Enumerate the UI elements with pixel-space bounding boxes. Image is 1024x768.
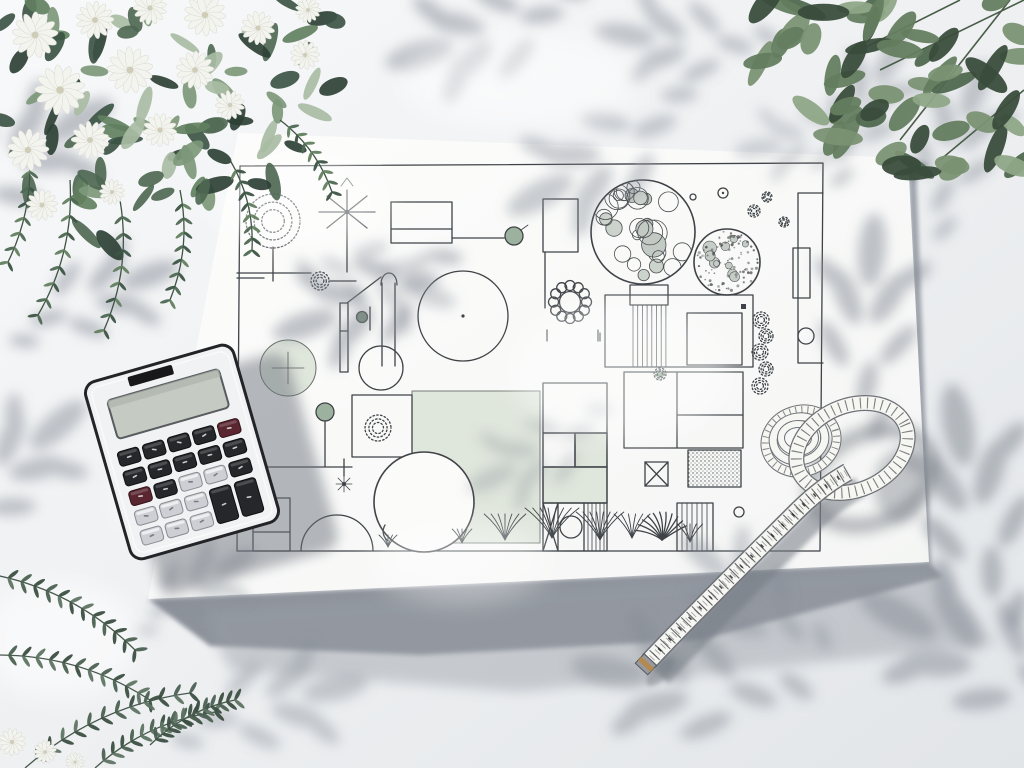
gravel-dot <box>723 231 725 233</box>
gravel-dot <box>707 255 709 257</box>
gravel-dot <box>708 272 710 274</box>
gravel-dot <box>739 271 741 273</box>
gravel-dot <box>756 258 758 260</box>
gravel-dot <box>728 240 730 242</box>
gravel-dot <box>703 249 705 251</box>
gravel-dot <box>727 287 729 289</box>
gravel-dot <box>751 268 754 271</box>
green-planting-bed <box>543 467 607 503</box>
gravel-dot <box>709 279 712 282</box>
gravel-dot <box>743 276 745 278</box>
gravel-dot <box>711 248 714 251</box>
gravel-dot <box>747 251 750 254</box>
gravel-dot <box>717 246 719 248</box>
gravel-dot <box>749 271 752 274</box>
gravel-dot <box>715 289 717 291</box>
gravel-dot <box>733 247 735 249</box>
gravel-blob <box>726 262 733 269</box>
gravel-dot <box>756 262 758 264</box>
gravel-dot <box>740 252 741 253</box>
gravel-dot <box>738 257 740 259</box>
gravel-dot <box>698 265 700 267</box>
gravel-dot <box>738 243 740 245</box>
gravel-dot <box>755 267 758 270</box>
gravel-dot <box>741 234 743 236</box>
shrub-dot-2 <box>316 403 334 421</box>
gravel-blob <box>730 272 740 282</box>
key-glyph <box>194 501 199 503</box>
gravel-dot <box>737 235 740 238</box>
flower-petal <box>39 189 44 204</box>
gravel-dot <box>735 273 738 276</box>
gravel-dot <box>698 251 701 254</box>
gravel-dot <box>733 266 736 269</box>
gravel-dot <box>728 248 731 251</box>
gravel-dot <box>712 254 714 256</box>
gravel-dot <box>730 232 732 234</box>
gravel-dot <box>727 275 730 278</box>
gravel-dot <box>704 279 706 281</box>
key-glyph <box>188 481 193 483</box>
gravel-dot <box>720 262 722 264</box>
scene-canvas <box>0 0 1024 768</box>
gravel-dot <box>726 288 727 289</box>
gravel-dot <box>743 281 745 283</box>
gravel-dot <box>718 260 720 262</box>
gravel-dot <box>724 242 727 245</box>
pebble <box>649 259 663 273</box>
key-glyph <box>144 515 149 517</box>
gravel-rect <box>688 450 741 487</box>
gravel-dot <box>729 235 732 238</box>
gravel-dot <box>740 253 742 255</box>
gravel-dot <box>705 246 708 249</box>
gravel-dot <box>739 240 741 242</box>
gravel-dot <box>744 269 746 271</box>
leaf <box>798 4 850 21</box>
gravel-dot <box>732 235 735 238</box>
gravel-dot <box>729 258 731 260</box>
gravel-dot <box>731 257 734 260</box>
gravel-dot <box>721 244 723 246</box>
gravel-dot <box>747 262 750 265</box>
gravel-dot <box>701 254 704 257</box>
gravel-dot <box>697 254 699 256</box>
gravel-dot <box>717 285 720 288</box>
gravel-dot <box>736 284 739 287</box>
gravel-dot <box>699 256 702 259</box>
small-plant-dot <box>722 192 724 194</box>
gravel-dot <box>747 271 749 273</box>
gravel-dot <box>712 284 714 286</box>
gravel-dot <box>705 270 707 272</box>
gravel-dot <box>699 275 702 278</box>
photo-scene <box>0 0 1024 768</box>
gravel-dot <box>746 241 749 244</box>
gravel-dot <box>750 245 752 247</box>
pebble <box>638 269 649 280</box>
sprinkler-symbol <box>336 476 352 492</box>
key-glyph <box>174 528 179 530</box>
gravel-dot <box>735 276 737 278</box>
large-tree-center-dot <box>461 314 464 317</box>
gravel-dot <box>727 260 729 262</box>
gravel-dot <box>730 289 733 292</box>
gravel-dot <box>742 270 745 273</box>
gravel-dot <box>723 283 725 285</box>
gravel-dot <box>714 272 716 274</box>
gravel-dot <box>711 269 712 270</box>
flower-petal <box>109 179 114 191</box>
gravel-dot <box>724 263 725 264</box>
shrub-dot <box>505 227 523 245</box>
gravel-dot <box>718 237 720 239</box>
gravel-dot <box>718 289 720 291</box>
gravel-dot <box>708 284 710 286</box>
gravel-dot <box>753 249 755 251</box>
gravel-dot <box>731 243 734 246</box>
